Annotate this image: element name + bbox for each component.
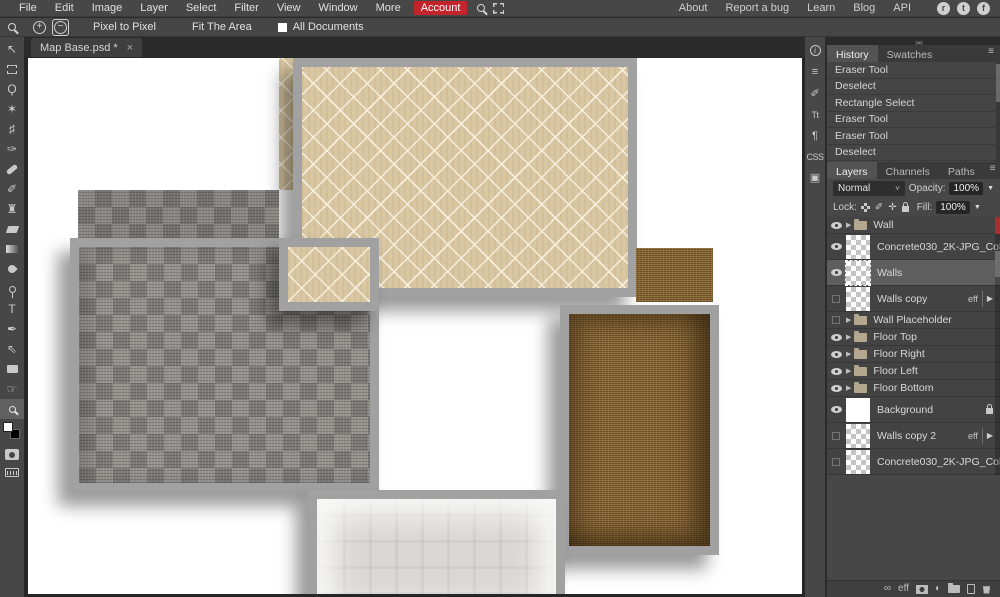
new-layer-icon[interactable] (967, 584, 975, 594)
lock-icons: ✐ ✛ (861, 203, 909, 213)
menu-bar: FileEditImageLayerSelectFilterViewWindow… (0, 0, 1000, 17)
lock-transparency-icon[interactable] (861, 203, 870, 212)
lock-label: Lock: (833, 202, 857, 213)
tab-layers[interactable]: Layers (827, 162, 877, 179)
effects-separator (982, 291, 983, 307)
keyboard-shortcuts-icon[interactable] (5, 468, 19, 477)
lock-fill-row: Lock: ✐ ✛ Fill: 100% ▼ (827, 198, 1000, 217)
blend-mode-select[interactable]: Normal ˅ (833, 181, 905, 196)
all-documents-label: All Documents (293, 21, 364, 33)
magic-wand-tool[interactable]: ✶ (0, 99, 24, 119)
visibility-toggle[interactable] (827, 316, 845, 324)
history-step[interactable]: Eraser Tool (827, 128, 1000, 145)
layer-name: Floor Left (873, 365, 917, 377)
texture-brown-small (636, 248, 713, 302)
blur-tool[interactable] (0, 259, 24, 279)
menu-link-blog[interactable]: Blog (844, 2, 884, 14)
fill-dropdown-icon[interactable]: ▼ (974, 204, 981, 211)
hidden-checkbox (832, 432, 840, 440)
layer-name: Walls copy 2 (877, 430, 936, 442)
visibility-toggle[interactable] (827, 458, 845, 466)
close-tab-icon[interactable]: × (127, 42, 133, 54)
shape-tool-glyph (7, 365, 18, 373)
layer-row-floor-right[interactable]: ▶Floor Right (827, 346, 1000, 363)
right-column: »« i≡✐Tt¶CSS▣ History Swatches ≡ Eraser … (805, 37, 1000, 597)
history-step[interactable]: Deselect (827, 79, 1000, 96)
zoom-in-icon[interactable]: + (33, 21, 46, 34)
canvas-area (24, 57, 805, 597)
history-scrollbar[interactable] (996, 62, 1000, 162)
adjustments-icon[interactable]: ≡ (812, 67, 818, 78)
history-step[interactable]: Deselect (827, 145, 1000, 162)
locked-icon (986, 408, 993, 414)
eye-icon (831, 222, 842, 229)
eye-icon (831, 269, 842, 276)
layers-tabs: Layers Channels Paths ≡ (827, 162, 1000, 179)
lasso-tool-glyph: Ϙ (7, 83, 16, 95)
photopea-app: FileEditImageLayerSelectFilterViewWindow… (0, 0, 1000, 597)
eraser-tool[interactable] (0, 219, 24, 239)
path-select-tool[interactable]: ⇖ (0, 339, 24, 359)
fill-label: Fill: (917, 202, 933, 213)
hidden-checkbox (832, 295, 840, 303)
lock-position-icon[interactable]: ✛ (888, 203, 896, 213)
layer-thumbnail[interactable] (846, 235, 870, 259)
history-step[interactable]: Eraser Tool (827, 62, 1000, 79)
option-button-fit-the-area[interactable]: Fit The Area (180, 21, 264, 33)
new-group-icon[interactable] (948, 585, 960, 593)
layers-panel: Layers Channels Paths ≡ Normal ˅ Opacity… (827, 162, 1000, 597)
foreground-color[interactable] (3, 422, 13, 432)
zoom-out-selected[interactable]: − (52, 19, 69, 36)
adjustment-layer-icon[interactable]: ◐ (935, 584, 941, 594)
menu-item-more[interactable]: More (367, 2, 410, 14)
type-tool[interactable]: T (0, 299, 24, 319)
fill-value[interactable]: 100% (936, 201, 970, 214)
type-tool-glyph: T (8, 303, 15, 315)
expand-icon[interactable]: ▶ (846, 333, 851, 341)
hidden-checkbox (832, 316, 840, 324)
texture-tile-strip (279, 58, 293, 190)
lock-pixels-icon[interactable]: ✐ (875, 203, 883, 213)
blend-mode-value: Normal (838, 183, 870, 194)
search-icon[interactable] (477, 4, 485, 12)
fullscreen-icon[interactable] (493, 3, 504, 14)
eraser-tool-glyph (5, 226, 19, 233)
layer-row-walls-copy-2[interactable]: Walls copy 2eff▶ (827, 423, 1000, 449)
effects-badge: eff (968, 294, 978, 304)
pen-tool-glyph: ✒ (7, 323, 17, 335)
option-button-pixel-to-pixel[interactable]: Pixel to Pixel (81, 21, 168, 33)
eyedropper-tool[interactable]: ✑ (0, 139, 24, 159)
lock-all-icon[interactable] (902, 206, 909, 212)
layer-row-concrete030-2k-jpg-col[interactable]: Concrete030_2K-JPG_Col (827, 449, 1000, 475)
texture-tile-small (279, 238, 379, 311)
layer-name: Background (877, 404, 933, 416)
eye-icon (831, 351, 842, 358)
visibility-toggle[interactable] (827, 351, 845, 358)
hand-tool-glyph: ☞ (7, 383, 18, 395)
visibility-toggle[interactable] (827, 269, 845, 276)
menu-items: FileEditImageLayerSelectFilterViewWindow… (0, 2, 410, 14)
layer-row-wall[interactable]: ▶Wall (827, 217, 1000, 234)
move-tool[interactable]: ↖ (0, 39, 24, 59)
eye-icon (831, 334, 842, 341)
tab-channels[interactable]: Channels (877, 162, 939, 179)
layer-name: Wall Placeholder (873, 314, 951, 326)
brush-tool-glyph: ✐ (7, 183, 17, 195)
blend-opacity-row: Normal ˅ Opacity: 100% ▼ (827, 179, 1000, 198)
layer-name: Wall (873, 219, 893, 231)
zoom-out-icon: − (54, 21, 67, 34)
layer-row-wall-placeholder[interactable]: ▶Wall Placeholder (827, 312, 1000, 329)
clone-stamp-tool[interactable]: ♜ (0, 199, 24, 219)
folder-icon (854, 367, 867, 376)
rectangle-select-tool-glyph (7, 65, 17, 74)
image-panel-icon[interactable]: ▣ (810, 173, 820, 184)
texture-carpet-strip (78, 190, 279, 238)
lasso-tool[interactable]: Ϙ (0, 79, 24, 99)
history-tabs: History Swatches ≡ (827, 45, 1000, 62)
reddit-icon[interactable]: r (937, 2, 950, 15)
layer-thumbnail[interactable] (846, 287, 870, 311)
glyphs-panel-icon[interactable]: Tt (812, 111, 819, 120)
dodge-tool[interactable] (0, 279, 24, 299)
layers-scrollbar[interactable] (995, 217, 1000, 475)
account-button[interactable]: Account (414, 1, 468, 15)
chevron-down-icon: ˅ (895, 184, 900, 193)
menu-item-image[interactable]: Image (83, 2, 132, 14)
expand-icon[interactable]: ▶ (846, 367, 851, 375)
info-icon[interactable]: i (810, 45, 821, 56)
layer-name: Walls (877, 267, 902, 279)
layers-menu-icon[interactable]: ≡ (984, 162, 1000, 179)
visibility-toggle[interactable] (827, 222, 845, 229)
all-documents-checkbox[interactable]: All Documents (278, 21, 364, 33)
visibility-toggle[interactable] (827, 295, 845, 303)
eye-icon (831, 406, 842, 413)
effects-separator (982, 428, 983, 444)
menu-item-edit[interactable]: Edit (46, 2, 83, 14)
opacity-label: Opacity: (909, 183, 946, 194)
delete-layer-icon[interactable] (982, 585, 991, 594)
layer-thumbnail[interactable] (846, 424, 870, 448)
opacity-value[interactable]: 100% (949, 182, 983, 195)
gradient-tool-glyph (6, 245, 18, 253)
menu-item-select[interactable]: Select (177, 2, 226, 14)
twitter-icon[interactable]: t (957, 2, 970, 15)
eye-icon (831, 368, 842, 375)
history-panel: History Swatches ≡ Eraser ToolDeselectRe… (827, 45, 1000, 162)
visibility-toggle[interactable] (827, 368, 845, 375)
history-step[interactable]: Eraser Tool (827, 112, 1000, 129)
spot-heal-tool[interactable] (0, 159, 24, 179)
rectangle-select-tool[interactable] (0, 59, 24, 79)
gradient-tool[interactable] (0, 239, 24, 259)
effects-badge: eff (968, 431, 978, 441)
effects-expand-icon[interactable]: ▶ (987, 294, 993, 303)
layer-thumbnail[interactable] (846, 450, 870, 474)
social-icons: rtf (930, 2, 1000, 15)
hidden-checkbox (832, 458, 840, 466)
document-tab-title: Map Base.psd * (40, 42, 118, 54)
blur-tool-glyph (6, 263, 17, 274)
clone-stamp-tool-glyph: ♜ (7, 203, 18, 215)
layer-list: ▶WallConcrete030_2K-JPG_ColWallsWalls co… (827, 217, 1000, 475)
menu-item-filter[interactable]: Filter (225, 2, 267, 14)
layer-mask-icon[interactable] (916, 585, 928, 594)
effects-expand-icon[interactable]: ▶ (987, 431, 993, 440)
tab-bar: Map Base.psd * × (24, 37, 805, 57)
panel-icon-strip: i≡✐Tt¶CSS▣ (805, 37, 826, 597)
color-swatches[interactable] (3, 422, 21, 440)
zoom-tool-glyph (9, 406, 16, 413)
layer-row-background[interactable]: Background (827, 397, 1000, 423)
layer-row-walls[interactable]: Walls (827, 260, 1000, 286)
hand-tool[interactable]: ☞ (0, 379, 24, 399)
options-bar: + − Pixel to PixelFit The Area All Docum… (0, 18, 1000, 37)
folder-icon (854, 333, 867, 342)
menu-link-report-a-bug[interactable]: Report a bug (716, 2, 798, 14)
expand-icon[interactable]: ▶ (846, 350, 851, 358)
expand-icon[interactable]: ▶ (846, 221, 851, 229)
facebook-icon[interactable]: f (977, 2, 990, 15)
layer-thumbnail[interactable] (846, 261, 870, 285)
eye-icon (831, 385, 842, 392)
screen-mode-icon[interactable] (5, 449, 19, 460)
zoom-tool[interactable] (0, 399, 24, 419)
layer-row-floor-bottom[interactable]: ▶Floor Bottom (827, 380, 1000, 397)
layer-effects-icon[interactable]: eff (898, 584, 909, 594)
folder-icon (854, 221, 867, 230)
expand-icon[interactable]: ▶ (846, 316, 851, 324)
layers-footer: ∞eff◐ (827, 580, 1000, 597)
path-select-tool-glyph: ⇖ (7, 343, 17, 355)
opacity-dropdown-icon[interactable]: ▼ (987, 185, 994, 192)
texture-brown-framed (560, 305, 719, 555)
paragraph-panel-icon[interactable]: ¶ (812, 131, 818, 142)
layer-name: Floor Top (873, 331, 917, 343)
menu-links: AboutReport a bugLearnBlogAPI (670, 2, 930, 14)
brush-tool[interactable]: ✐ (0, 179, 24, 199)
move-tool-glyph: ↖ (7, 43, 17, 55)
history-menu-icon[interactable]: ≡ (982, 45, 1000, 62)
texture-concrete-framed (308, 490, 565, 594)
folder-icon (854, 384, 867, 393)
crop-tool[interactable]: ♯ (0, 119, 24, 139)
layer-row-walls-copy[interactable]: Walls copyeff▶ (827, 286, 1000, 312)
tab-paths[interactable]: Paths (939, 162, 984, 179)
layer-thumbnail[interactable] (846, 398, 870, 422)
menu-item-file[interactable]: File (10, 2, 46, 14)
visibility-toggle[interactable] (827, 243, 845, 250)
menu-item-window[interactable]: Window (310, 2, 367, 14)
dodge-tool-glyph (9, 286, 16, 293)
layer-row-concrete030-2k-jpg-col[interactable]: Concrete030_2K-JPG_Col (827, 234, 1000, 260)
visibility-toggle[interactable] (827, 334, 845, 341)
magic-wand-tool-glyph: ✶ (7, 103, 17, 115)
visibility-toggle[interactable] (827, 406, 845, 413)
layer-name: Floor Bottom (873, 382, 933, 394)
crop-tool-glyph: ♯ (9, 123, 15, 135)
layer-name: Concrete030_2K-JPG_Col (877, 241, 1000, 253)
spot-heal-tool-glyph (6, 163, 18, 175)
tab-swatches[interactable]: Swatches (878, 45, 942, 62)
visibility-toggle[interactable] (827, 385, 845, 392)
shape-tool[interactable] (0, 359, 24, 379)
layer-row-floor-top[interactable]: ▶Floor Top (827, 329, 1000, 346)
menu-link-about[interactable]: About (670, 2, 717, 14)
css-panel-icon[interactable]: CSS (806, 153, 823, 162)
folder-icon (854, 350, 867, 359)
layer-name: Floor Right (873, 348, 924, 360)
brush-settings-icon[interactable]: ✐ (810, 89, 819, 100)
checkbox-icon (278, 23, 287, 32)
expand-icon[interactable]: ▶ (846, 384, 851, 392)
layer-name: Walls copy (877, 293, 927, 305)
menu-item-view[interactable]: View (268, 2, 310, 14)
layer-name: Concrete030_2K-JPG_Col (877, 456, 1000, 468)
zoom-tool-icon (8, 23, 16, 31)
option-buttons: Pixel to PixelFit The Area (69, 21, 264, 33)
link-layers-icon[interactable]: ∞ (884, 584, 891, 594)
folder-icon (854, 316, 867, 325)
tool-bar: ↖Ϙ✶♯✑✐♜T✒⇖☞ (0, 37, 24, 597)
visibility-toggle[interactable] (827, 432, 845, 440)
eyedropper-tool-glyph: ✑ (7, 143, 17, 155)
eye-icon (831, 243, 842, 250)
menu-item-layer[interactable]: Layer (131, 2, 177, 14)
pen-tool[interactable]: ✒ (0, 319, 24, 339)
history-step[interactable]: Rectangle Select (827, 95, 1000, 112)
layer-row-floor-left[interactable]: ▶Floor Left (827, 363, 1000, 380)
menu-link-api[interactable]: API (884, 2, 920, 14)
document-tab[interactable]: Map Base.psd * × (31, 38, 142, 57)
tab-history[interactable]: History (827, 45, 878, 62)
menu-link-learn[interactable]: Learn (798, 2, 844, 14)
document-canvas[interactable] (28, 58, 802, 594)
